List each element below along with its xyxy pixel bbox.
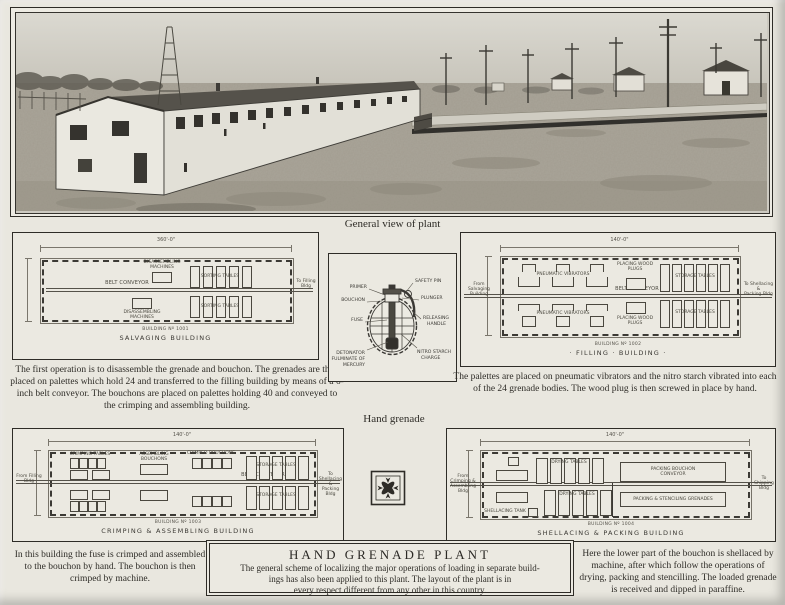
table-rect <box>246 456 257 480</box>
machine-rect <box>88 458 97 469</box>
to-filling-label: To Filling Bldg <box>294 279 318 289</box>
storage-tables-label: STORAGE TABLES <box>660 310 730 315</box>
to-shipping-label: To Shipping Bldg <box>752 476 776 491</box>
label-line: PLUGS <box>628 321 643 326</box>
crimping-plan-frame: 140'-0" BELT CONVEYOR From Filling Bldg … <box>12 428 344 542</box>
vibrator-rect <box>590 316 604 327</box>
from-salvaging-label: From Salvaging Building <box>462 282 496 297</box>
machine-rect <box>70 501 79 512</box>
filling-plan: 140'-0" BELT CONVEYOR From Salvaging Bui… <box>462 234 774 365</box>
crimped-bouchons-label: CRIMPED BOUCHONS <box>182 451 240 456</box>
building-name: SALVAGING BUILDING <box>14 334 317 342</box>
label-line: From Crimping & <box>450 474 475 484</box>
machine-rect <box>626 278 646 290</box>
table-rect <box>272 486 283 510</box>
dimension-line <box>480 441 750 442</box>
table-rect <box>285 456 296 480</box>
shellacing-caption: Here the lower part of the bouchon is sh… <box>578 548 778 596</box>
vibrator-rect <box>522 316 536 327</box>
shellacing-plan: 140'-0" From Crimping & Assembling Bldg … <box>448 430 774 540</box>
label-line: PACKING & STENCILING GRENADES <box>633 497 713 502</box>
machine-rect <box>79 501 88 512</box>
pneumatic-vibrators-label: PNEUMATIC VIBRATORS <box>516 311 610 316</box>
grenade-diagram-frame: PRIMER SAFETY PIN BOUCHON PLUNGER FUSE R… <box>328 253 457 382</box>
sorting-tables-label: SORTING TABLES <box>190 304 250 309</box>
nitro-starch-label-1: NITRO STARCH <box>417 349 451 355</box>
machine-rect <box>70 490 88 500</box>
machine-rect <box>212 496 222 507</box>
vibrator-rect <box>556 316 570 327</box>
label-line: To Shellacing & <box>744 282 773 292</box>
crimping-plan: 140'-0" BELT CONVEYOR From Filling Bldg … <box>14 430 342 540</box>
dimension-label: 360'-0" <box>40 237 292 243</box>
photo <box>15 12 770 214</box>
machine-rect <box>626 302 646 314</box>
label-line: From Salvaging <box>468 282 490 292</box>
table-rect <box>298 486 309 510</box>
building-number: BUILDING Nº 1002 <box>462 342 774 347</box>
label-line: Building <box>470 292 488 297</box>
machine-rect <box>88 501 97 512</box>
placing-wood-plugs-label: PLACING WOOD PLUGS <box>614 316 656 326</box>
detonator-label-1: DETONATOR <box>336 350 366 356</box>
filling-caption: The palettes are placed on pneumatic vib… <box>452 371 778 395</box>
drying-tables-label: DRYING TABLES <box>534 460 604 465</box>
hand-grenade-caption: Hand grenade <box>342 413 446 425</box>
machine-rect <box>508 457 519 466</box>
fuse-label: FUSE <box>351 317 363 323</box>
machine-rect <box>79 458 88 469</box>
machine-rect <box>222 458 232 469</box>
drying-tables-label: DRYING TABLES <box>542 492 612 497</box>
machine-rect <box>202 496 212 507</box>
packing-bouchon-conveyor-box: PACKING BOUCHON CONVEYOR <box>620 462 726 482</box>
title-text-line: every respect different from any other i… <box>210 585 570 596</box>
safety-pin-label: SAFETY PIN <box>415 278 441 284</box>
machine-rect <box>192 496 202 507</box>
vibrator-rect <box>552 276 574 287</box>
building-number: BUILDING Nº 1001 <box>14 327 317 332</box>
label-line: PLUGS <box>628 267 643 272</box>
bouchon-label: BOUCHON <box>341 297 365 303</box>
machine-rect <box>222 496 232 507</box>
from-filling-label: From Filling Bldg <box>14 474 44 484</box>
plant-photo-illustration <box>16 13 767 211</box>
dimension-line-vertical <box>27 258 28 322</box>
title-text-line: The general scheme of localizing the maj… <box>210 563 570 574</box>
interior-wall <box>612 483 613 517</box>
primer-label: PRIMER <box>350 284 368 290</box>
label-line: MACHINES <box>130 315 154 320</box>
storage-tables-label: STORAGE TABLES <box>246 493 306 498</box>
from-crimping-label: From Crimping & Assembling Bldg <box>448 474 478 494</box>
packing-stenciling-box: PACKING & STENCILING GRENADES <box>620 492 726 507</box>
filling-plan-frame: 140'-0" BELT CONVEYOR From Salvaging Bui… <box>460 232 776 367</box>
machine-rect <box>70 470 88 480</box>
to-shellacing-label: To Shellacing & Packing Bldg <box>318 472 343 497</box>
building-number: BUILDING Nº 1003 <box>14 520 342 525</box>
photo-frame <box>10 7 773 217</box>
crimping-tables-label: CRIMPING TABLES <box>62 452 118 457</box>
belt-conveyor-line <box>46 288 313 292</box>
shellacing-tank-label: SHELLACING TANK <box>484 509 526 514</box>
table-rect <box>298 456 309 480</box>
releasing-handle-label-1: RELEASING <box>423 315 449 321</box>
detonator-label-3: MERCURY <box>343 362 365 368</box>
title-box-inner: HAND GRENADE PLANT The general scheme of… <box>209 543 571 593</box>
storage-tables-label: STORAGE TABLES <box>246 463 306 468</box>
salvaging-caption: The first operation is to disassemble th… <box>10 364 344 412</box>
label-line: BOUCHONS <box>141 457 167 462</box>
dimension-label: 140'-0" <box>500 237 739 243</box>
nitro-starch-label-2: CHARGE <box>421 355 441 361</box>
title-text-line: ings has also been applied to this plant… <box>210 574 570 585</box>
machine-rect <box>92 490 110 500</box>
releasing-handle-label-2: HANDLE <box>427 321 446 327</box>
dimension-line <box>48 441 316 442</box>
rosette-ornament-icon <box>370 470 406 511</box>
belt-conveyor-line <box>464 294 772 298</box>
crimping-caption: In this building the fuse is crimped and… <box>12 549 208 585</box>
table-rect <box>246 486 257 510</box>
machine-rect <box>92 470 110 480</box>
title-box: HAND GRENADE PLANT The general scheme of… <box>206 540 574 596</box>
shellacing-plan-frame: 140'-0" From Crimping & Assembling Bldg … <box>446 428 776 542</box>
dimension-line <box>500 247 739 248</box>
storage-tables-label: STORAGE TABLES <box>660 274 730 279</box>
vibrator-rect <box>518 276 540 287</box>
label-line: CONVEYOR <box>660 472 685 477</box>
dimension-label: 140'-0" <box>480 432 750 438</box>
machine-rect <box>152 272 172 283</box>
machine-rect <box>97 458 106 469</box>
bench-rect <box>496 470 528 481</box>
building-name: CRIMPING & ASSEMBLING BUILDING <box>14 527 342 535</box>
label-line: Packing Bldg <box>322 487 339 497</box>
disassembling-machines-label: DISASSEMBLING MACHINES <box>138 260 186 270</box>
grenade-cutaway-diagram: PRIMER SAFETY PIN BOUCHON PLUNGER FUSE R… <box>329 254 454 379</box>
machine-rect <box>97 501 106 512</box>
building-name: SHELLACING & PACKING BUILDING <box>448 529 774 537</box>
label-line: To Shellacing & <box>319 472 342 487</box>
placing-wood-plugs-label: PLACING WOOD PLUGS <box>614 262 656 272</box>
to-shellacing-label: To Shellacing & Packing Bldg <box>742 282 775 297</box>
machine-rect <box>192 458 202 469</box>
vibrator-rect <box>586 276 608 287</box>
tank-rect <box>528 508 538 517</box>
machine-rect <box>202 458 212 469</box>
disassembling-machines-label: DISASSEMBLING MACHINES <box>118 310 166 320</box>
belt-conveyor-line <box>16 480 340 484</box>
photo-caption: General view of plant <box>0 218 785 230</box>
table-rect <box>259 456 270 480</box>
dimension-line <box>40 247 292 248</box>
page-title: HAND GRENADE PLANT <box>210 547 570 563</box>
salvaging-plan: 360'-0" BELT CONVEYOR DISASSEMBLING MACH… <box>14 234 317 358</box>
assembling-bouchons-label: ASSEMBLING BOUCHONS <box>132 452 176 462</box>
table-rect <box>259 486 270 510</box>
salvaging-plan-frame: 360'-0" BELT CONVEYOR DISASSEMBLING MACH… <box>12 232 319 360</box>
machine-rect <box>140 490 168 501</box>
plunger-label: PLUNGER <box>421 295 443 301</box>
machine-rect <box>140 464 168 475</box>
table-rect <box>285 486 296 510</box>
bench-rect <box>496 492 528 503</box>
building-number: BUILDING Nº 1004 <box>448 522 774 527</box>
scanned-page: General view of plant 360'-0" BELT CONVE… <box>0 0 785 605</box>
dimension-label: 140'-0" <box>48 432 316 438</box>
table-rect <box>272 456 283 480</box>
label-line: Packing Bldg <box>744 292 773 297</box>
machine-rect <box>132 298 152 309</box>
sorting-tables-label: SORTING TABLES <box>190 274 250 279</box>
machine-rect <box>212 458 222 469</box>
pneumatic-vibrators-label: PNEUMATIC VIBRATORS <box>516 272 610 277</box>
detonator-label-2: FULMINATE OF <box>331 356 365 362</box>
building-name: · FILLING · BUILDING · <box>462 349 774 357</box>
machine-rect <box>70 458 79 469</box>
belt-conveyor-line <box>450 482 772 486</box>
label-line: MACHINES <box>150 265 174 270</box>
label-line: Assembling Bldg <box>450 484 476 494</box>
